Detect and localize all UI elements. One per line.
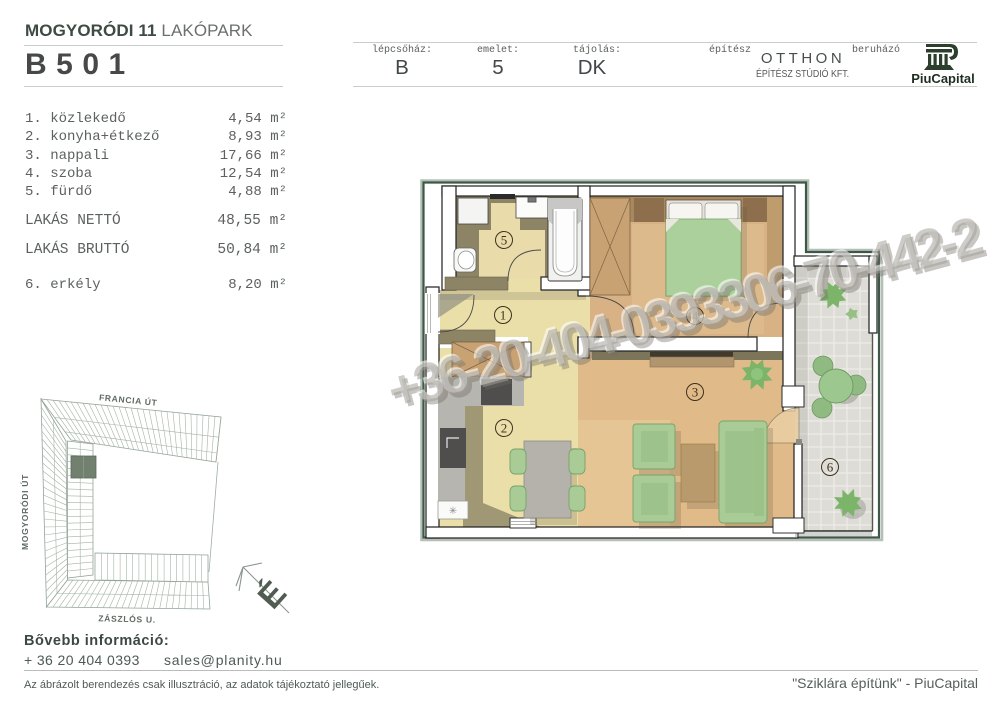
svg-text:✳: ✳ bbox=[449, 506, 457, 517]
svg-text:2: 2 bbox=[501, 421, 508, 436]
svg-text:5: 5 bbox=[501, 233, 508, 248]
svg-text:1: 1 bbox=[500, 308, 507, 323]
svg-text:É: É bbox=[251, 574, 294, 616]
svg-text:MOGYORÓDI ÚT: MOGYORÓDI ÚT bbox=[19, 474, 30, 550]
svg-text:3: 3 bbox=[692, 385, 699, 400]
svg-text:6: 6 bbox=[827, 460, 834, 475]
svg-text:ZÁSZLÓS U.: ZÁSZLÓS U. bbox=[98, 612, 156, 625]
